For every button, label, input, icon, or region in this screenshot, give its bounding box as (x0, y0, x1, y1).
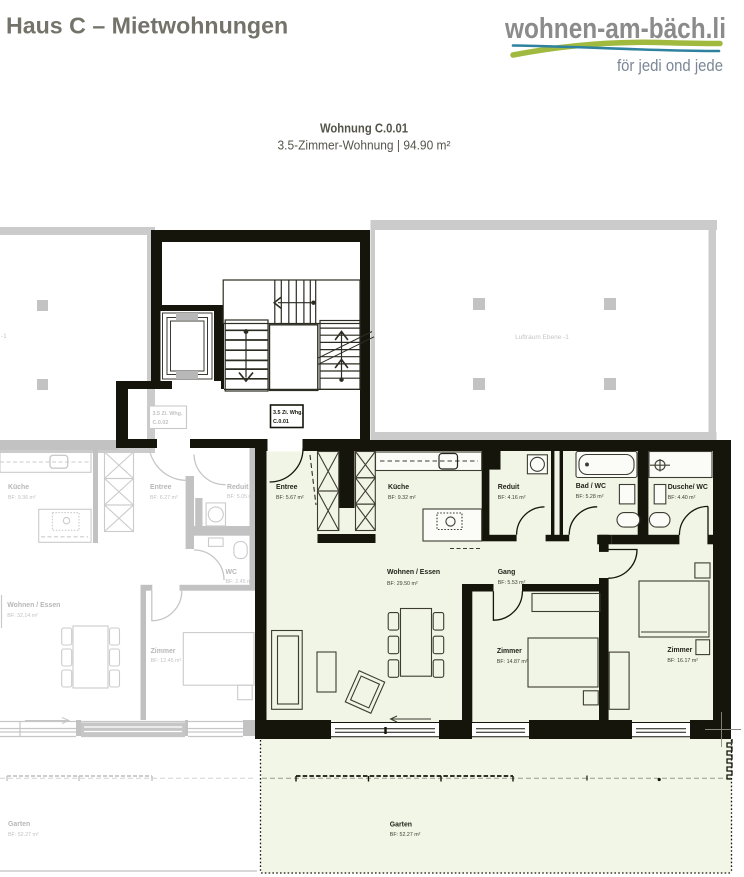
svg-text:Wohnung C.0.01: Wohnung C.0.01 (320, 122, 408, 136)
svg-text:BF: 16.17 m²: BF: 16.17 m² (667, 658, 698, 664)
svg-text:BF: 4.40 m²: BF: 4.40 m² (668, 495, 696, 501)
svg-text:Garten: Garten (390, 822, 412, 829)
svg-text:Entree: Entree (150, 484, 172, 491)
svg-text:Küche: Küche (388, 484, 409, 491)
svg-text:BF: 12.45 m²: BF: 12.45 m² (151, 658, 182, 664)
svg-text:för jedi ond jede: för jedi ond jede (617, 56, 723, 75)
svg-text:Reduit: Reduit (227, 484, 249, 491)
svg-text:Reduit: Reduit (498, 484, 520, 491)
svg-text:Gang: Gang (498, 569, 516, 576)
svg-text:3.5 Zi. Whg.: 3.5 Zi. Whg. (153, 411, 183, 417)
svg-text:Entree: Entree (276, 484, 298, 491)
svg-text:Garten: Garten (8, 821, 30, 828)
svg-text:Dusche/ WC: Dusche/ WC (668, 484, 708, 491)
svg-text:BF: 5.53 m²: BF: 5.53 m² (498, 580, 526, 586)
svg-text:Haus C – Mietwohnungen: Haus C – Mietwohnungen (6, 13, 288, 39)
svg-text:BF: 9.32 m²: BF: 9.32 m² (388, 495, 416, 501)
svg-text:BF: 14.87 m²: BF: 14.87 m² (497, 659, 528, 665)
svg-text:BF: 6.27 m²: BF: 6.27 m² (150, 495, 178, 501)
svg-text:3.5-Zimmer-Wohnung | 94.90 m²: 3.5-Zimmer-Wohnung | 94.90 m² (278, 138, 452, 153)
svg-text:Zimmer: Zimmer (151, 648, 176, 655)
svg-text:3.5 Zi. Whg.: 3.5 Zi. Whg. (273, 410, 303, 416)
svg-text:WC: WC (226, 569, 238, 576)
svg-text:Bad / WC: Bad / WC (576, 483, 606, 490)
svg-text:-1: -1 (1, 333, 7, 340)
svg-text:BF: 32.14 m²: BF: 32.14 m² (7, 613, 38, 619)
svg-text:BF: 5.67 m²: BF: 5.67 m² (276, 495, 304, 501)
svg-text:BF: 5.28 m²: BF: 5.28 m² (576, 494, 604, 500)
svg-text:C.0.02: C.0.02 (153, 420, 169, 426)
svg-text:Wohnen / Essen: Wohnen / Essen (7, 602, 60, 609)
svg-text:BF: 52.27 m²: BF: 52.27 m² (8, 832, 39, 838)
svg-text:Zimmer: Zimmer (497, 648, 522, 655)
svg-text:Wohnen / Essen: Wohnen / Essen (387, 569, 440, 576)
svg-text:Zimmer: Zimmer (667, 647, 692, 654)
svg-text:BF: 5.05 m²: BF: 5.05 m² (227, 494, 255, 500)
svg-text:Luftraum Ebene -1: Luftraum Ebene -1 (515, 334, 569, 341)
svg-text:BF: 4.16 m²: BF: 4.16 m² (498, 495, 526, 501)
svg-text:BF: 2.45 m²: BF: 2.45 m² (226, 579, 254, 585)
svg-text:BF: 29.50 m²: BF: 29.50 m² (387, 581, 418, 587)
svg-text:BF: 9.36 m²: BF: 9.36 m² (8, 495, 36, 501)
svg-text:Küche: Küche (8, 484, 29, 491)
svg-text:C.0.01: C.0.01 (273, 419, 289, 425)
svg-text:BF: 52.27 m²: BF: 52.27 m² (390, 832, 421, 838)
